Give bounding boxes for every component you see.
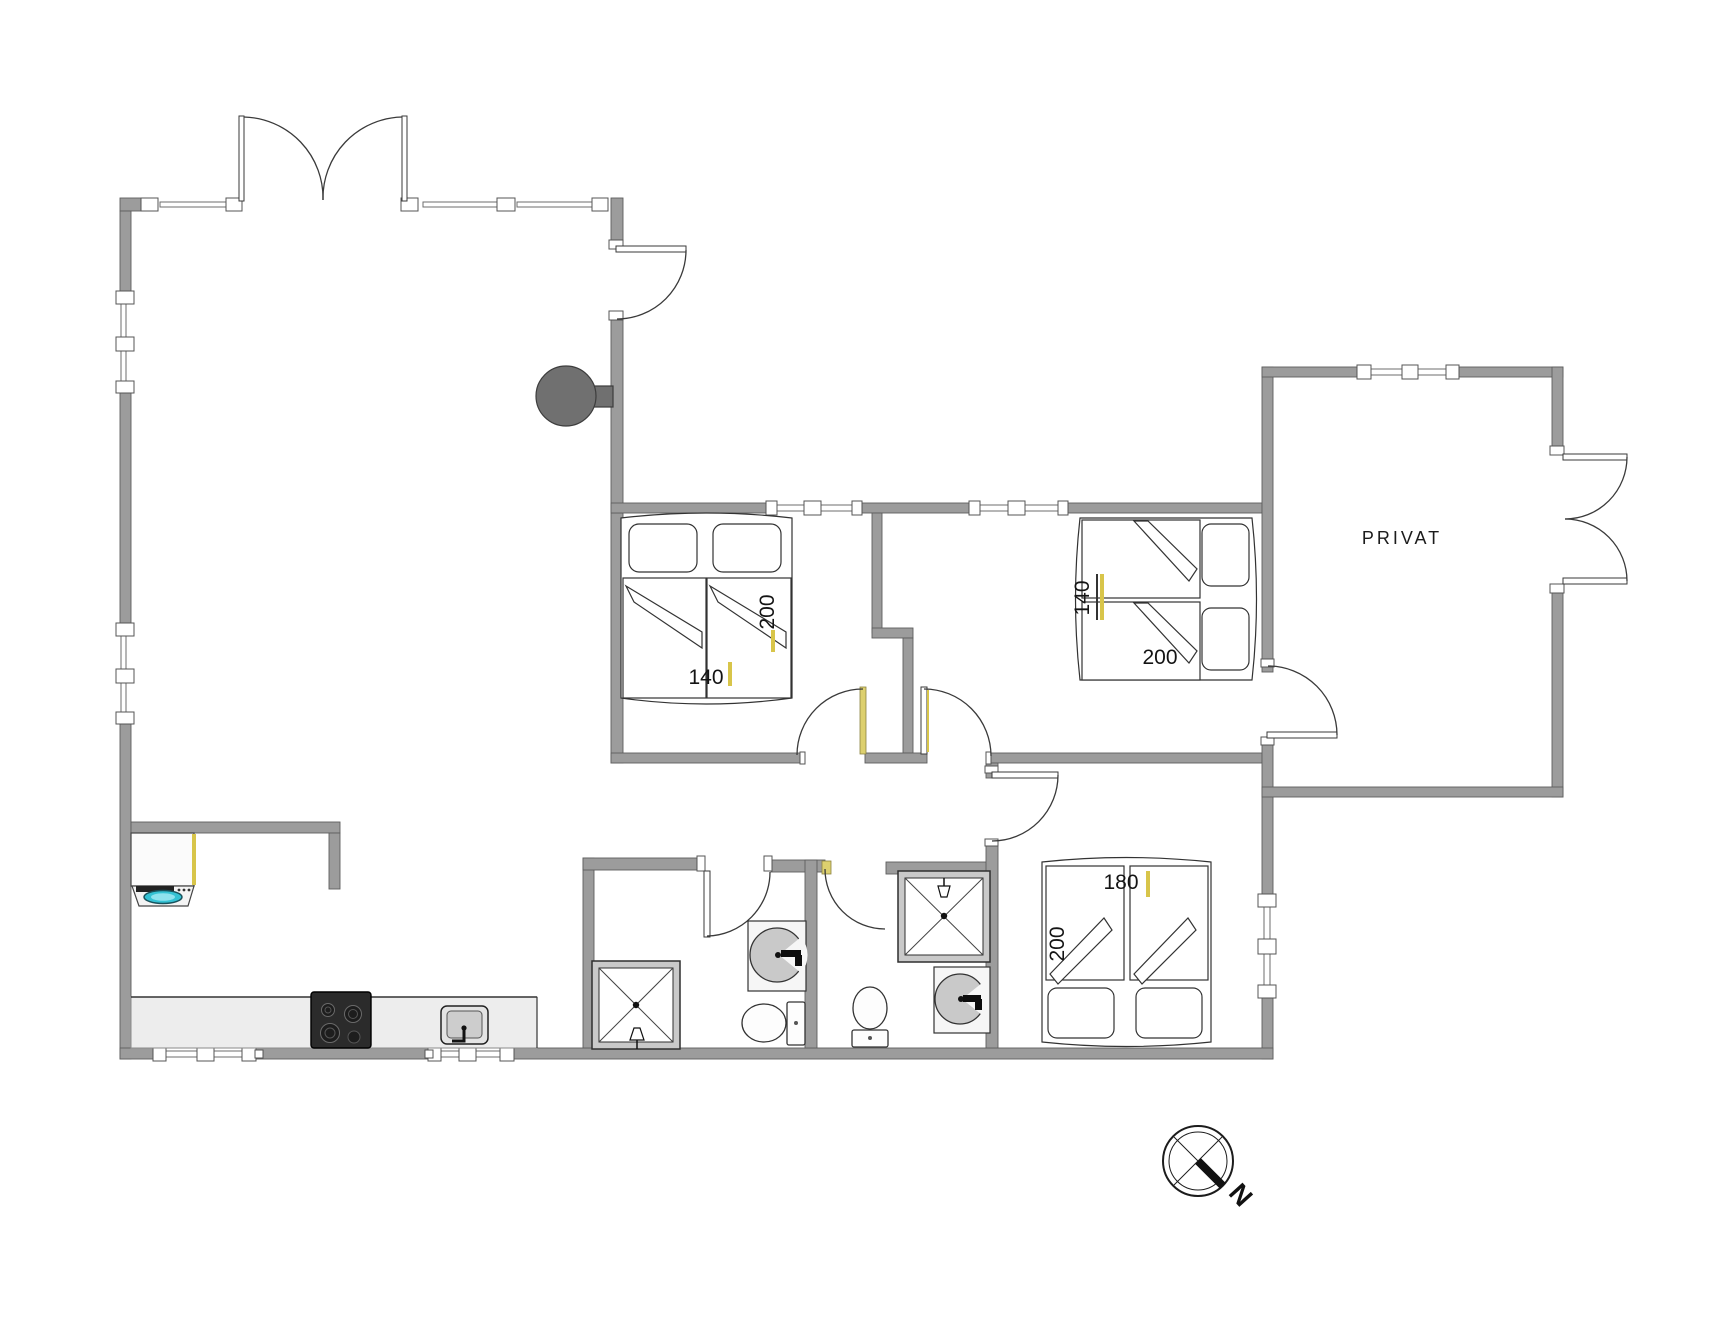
bedroom-3: 180 200 — [1042, 858, 1211, 1047]
bedroom2-door — [921, 687, 991, 764]
bed1-length-label: 200 — [756, 594, 779, 629]
doors — [239, 116, 1627, 937]
bedroom1-door — [797, 687, 866, 764]
bed2-length-label: 200 — [1142, 646, 1177, 669]
bathroom-2 — [852, 871, 990, 1047]
bathroom2-door — [822, 861, 885, 929]
walls — [120, 198, 1563, 1059]
shower2-icon — [898, 871, 990, 962]
bedroom3-door — [985, 766, 1058, 846]
floor-plan-drawing: 200 140 140 200 180 — [0, 0, 1716, 1318]
kitchen-sink-icon — [441, 1006, 488, 1044]
privat-room: PRIVAT — [1362, 528, 1442, 548]
compass-north-label: N — [1223, 1178, 1258, 1213]
toilet-icon — [742, 1002, 805, 1045]
fireplace-icon — [536, 366, 613, 426]
washer-icon — [131, 833, 196, 906]
privat-entrance-double-door — [1550, 446, 1627, 593]
stove-icon — [311, 992, 371, 1048]
bed3-width-label: 180 — [1103, 871, 1138, 894]
shower-icon — [592, 961, 680, 1049]
bed1-width-label: 140 — [688, 666, 723, 689]
washbasin2-icon — [934, 967, 990, 1033]
living-room — [131, 366, 613, 1048]
compass-icon: N — [1163, 1126, 1258, 1212]
living-room-east-door — [609, 240, 686, 320]
bedroom-1: 200 140 — [621, 513, 792, 704]
bedroom-2: 140 200 — [1071, 518, 1257, 680]
toilet2-icon — [852, 987, 888, 1047]
bathroom-1 — [592, 921, 808, 1049]
entrance-double-door — [239, 116, 407, 201]
floor-plan-page: 200 140 140 200 180 — [0, 0, 1716, 1318]
privat-room-label: PRIVAT — [1362, 528, 1442, 548]
bed3-length-label: 200 — [1046, 926, 1069, 961]
bed2-width-label: 140 — [1071, 580, 1094, 615]
washbasin-icon — [748, 921, 808, 991]
